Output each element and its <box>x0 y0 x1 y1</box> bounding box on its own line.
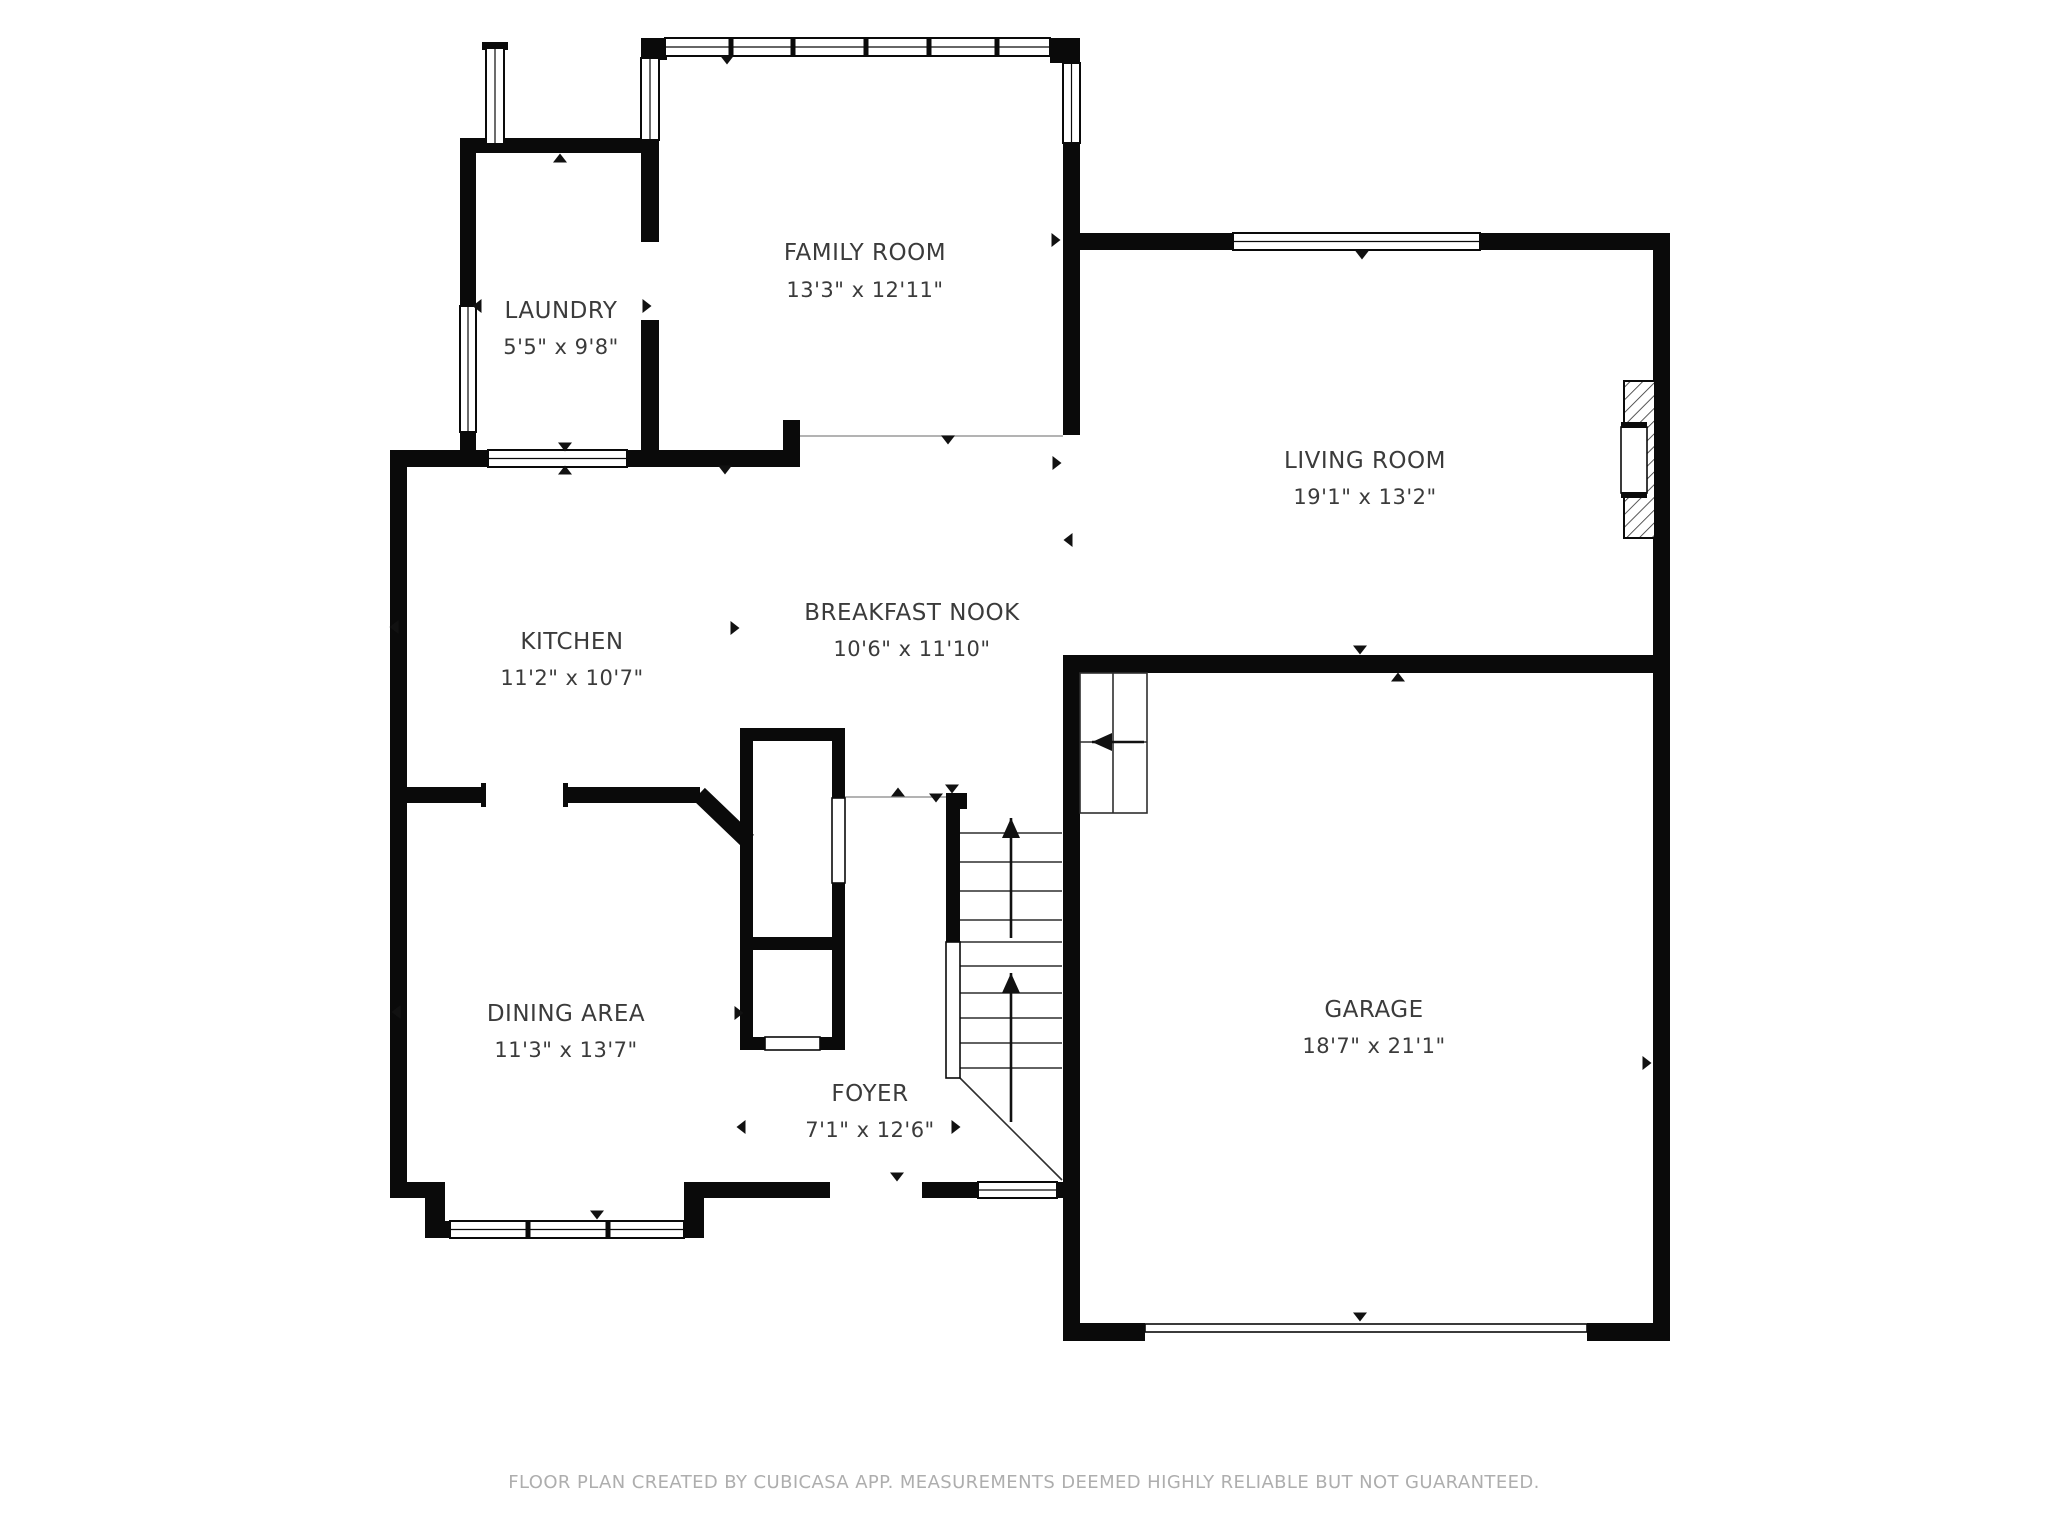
opening-marker-down <box>718 466 732 475</box>
room-dims-breakfast-nook: 10'6" x 11'10" <box>833 637 990 661</box>
wall <box>641 38 667 60</box>
window-mullion <box>606 1221 611 1238</box>
opening-marker-down <box>890 1173 904 1182</box>
room-dims-foyer: 7'1" x 12'6" <box>805 1118 934 1142</box>
wall <box>1050 38 1080 63</box>
room-label-kitchen: KITCHEN <box>520 629 623 655</box>
wall <box>641 140 659 242</box>
room-dims-family-room: 13'3" x 12'11" <box>786 278 943 302</box>
door-panel <box>765 1037 820 1050</box>
wall <box>740 937 845 950</box>
labels-layer: FAMILY ROOM13'3" x 12'11"LAUNDRY5'5" x 9… <box>487 240 1446 1142</box>
room-dims-kitchen: 11'2" x 10'7" <box>500 666 643 690</box>
wall <box>740 728 845 741</box>
wall <box>832 728 845 798</box>
stair-direction-arrow-head <box>1002 973 1020 993</box>
fireplace-band <box>1621 422 1647 428</box>
disclaimer-text: FLOOR PLAN CREATED BY CUBICASA APP. MEAS… <box>0 1472 2048 1493</box>
wall <box>922 1182 978 1198</box>
room-label-laundry: LAUNDRY <box>505 298 618 324</box>
wall <box>1063 143 1080 435</box>
room-label-foyer: FOYER <box>831 1081 908 1107</box>
room-label-breakfast-nook: BREAKFAST NOOK <box>804 600 1020 626</box>
wall <box>390 787 483 803</box>
wall <box>740 1037 765 1050</box>
wall <box>1063 655 1080 1341</box>
opening-marker-left <box>1064 533 1073 547</box>
window-mullion <box>729 38 734 56</box>
basement-stair-arrow-head <box>1092 733 1112 751</box>
window-mullion <box>995 38 1000 56</box>
wall <box>740 728 753 1050</box>
wall <box>442 1221 450 1238</box>
room-label-family-room: FAMILY ROOM <box>784 240 946 266</box>
door-panel <box>832 798 845 883</box>
floor-plan-svg: FAMILY ROOM13'3" x 12'11"LAUNDRY5'5" x 9… <box>0 0 2048 1536</box>
window-mullion <box>864 38 869 56</box>
opening-marker-left <box>737 1120 746 1134</box>
opening-marker-right <box>1643 1056 1652 1070</box>
room-label-dining-area: DINING AREA <box>487 1001 645 1027</box>
wall <box>563 783 568 807</box>
wall <box>390 1182 425 1198</box>
window-mullion <box>927 38 932 56</box>
fireplace-firebox <box>1621 427 1647 493</box>
wall <box>946 793 960 942</box>
wall <box>1480 233 1653 250</box>
opening-marker-down <box>590 1211 604 1220</box>
opening-marker-right <box>643 299 652 313</box>
fireplace-band <box>1621 492 1647 498</box>
door-panel <box>1145 1324 1587 1332</box>
wall <box>1587 1323 1670 1341</box>
wall <box>641 320 659 467</box>
opening-marker-right <box>1053 456 1062 470</box>
wall <box>700 1182 830 1198</box>
opening-marker-down <box>945 785 959 794</box>
stair-direction-arrow-head <box>1002 818 1020 838</box>
wall <box>832 883 845 1050</box>
details-layer <box>800 381 1655 1180</box>
room-dims-laundry: 5'5" x 9'8" <box>503 335 619 359</box>
floor-plan-page: FAMILY ROOM13'3" x 12'11"LAUNDRY5'5" x 9… <box>0 0 2048 1536</box>
wall <box>390 450 407 1198</box>
wall <box>1063 1323 1145 1341</box>
opening-marker-down <box>1353 1313 1367 1322</box>
room-label-living-room: LIVING ROOM <box>1284 448 1446 474</box>
door-panel <box>946 942 960 1078</box>
opening-marker-right <box>731 621 740 635</box>
room-label-garage: GARAGE <box>1324 997 1423 1023</box>
opening-marker-down <box>929 794 943 803</box>
wall <box>783 420 800 467</box>
room-dims-dining-area: 11'3" x 13'7" <box>494 1038 637 1062</box>
opening-marker-down <box>720 56 734 65</box>
window-mullion <box>526 1221 531 1238</box>
room-dims-living-room: 19'1" x 13'2" <box>1293 485 1436 509</box>
opening-marker-right <box>952 1120 961 1134</box>
wall <box>1080 233 1233 250</box>
opening-marker-up <box>553 154 567 163</box>
opening-marker-up <box>1391 673 1405 682</box>
opening-marker-down <box>1353 646 1367 655</box>
wall <box>820 1037 845 1050</box>
wall <box>481 783 486 807</box>
opening-marker-up <box>891 788 905 797</box>
wall <box>567 787 700 803</box>
room-dims-garage: 18'7" x 21'1" <box>1302 1034 1445 1058</box>
wall <box>460 138 476 306</box>
opening-marker-down <box>1355 251 1369 260</box>
wall <box>1063 655 1670 673</box>
opening-marker-right <box>1052 233 1061 247</box>
opening-marker-down <box>941 436 955 445</box>
window-mullion <box>791 38 796 56</box>
